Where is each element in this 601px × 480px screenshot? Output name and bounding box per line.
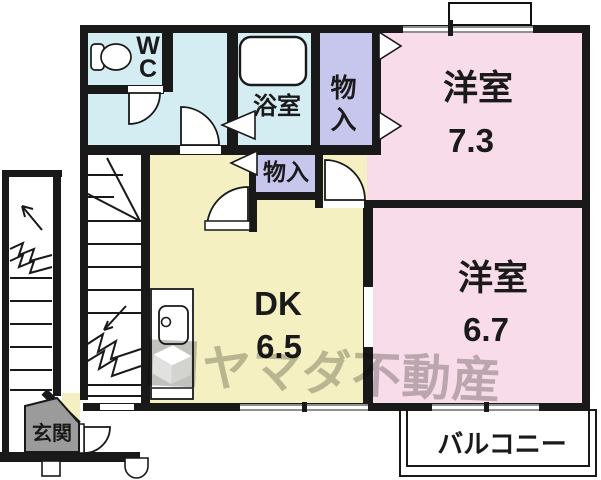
kitchen-faucet-icon <box>162 318 171 327</box>
entrance-step <box>42 461 60 476</box>
dk-center-door-leaf <box>205 221 250 230</box>
toilet-bowl-icon <box>101 44 131 70</box>
western-room-top-label: 洋室 <box>442 71 514 106</box>
bathtub-icon <box>240 37 306 85</box>
closet-upper-label: 物入 <box>327 68 355 144</box>
bath-label: 浴室 <box>241 95 313 119</box>
external-stairs <box>10 206 52 390</box>
dk-label: DK <box>247 287 309 320</box>
closet-upper-door-triangle-2 <box>379 112 401 140</box>
watermark-cube-logo-icon <box>147 339 197 387</box>
porch-step-arc <box>125 458 148 478</box>
watermark-text: ヤマダ不動産 <box>201 329 504 413</box>
closet-upper-door-triangle-1 <box>379 32 401 60</box>
closet-lower-door-triangle <box>231 151 257 175</box>
entrance-door-swing <box>84 427 110 453</box>
closet-lower-label: 物入 <box>260 161 312 184</box>
wc-label-line2: C <box>132 57 164 82</box>
wc-door-swing <box>129 93 160 124</box>
western-room-bottom-label: 洋室 <box>457 261 529 296</box>
hall-dk-door-swing <box>181 107 219 145</box>
entrance-label: 玄関 <box>29 424 75 444</box>
western-room-top-size: 7.3 <box>442 124 500 157</box>
internal-stairs <box>86 158 141 396</box>
room-top-door-swing <box>325 160 365 200</box>
balcony-label: バルコニー <box>420 431 584 457</box>
floorplan: W C 浴室 物入 物入 洋室 7.3 洋室 6.7 DK 6.5 玄関 バルコ… <box>0 0 601 480</box>
